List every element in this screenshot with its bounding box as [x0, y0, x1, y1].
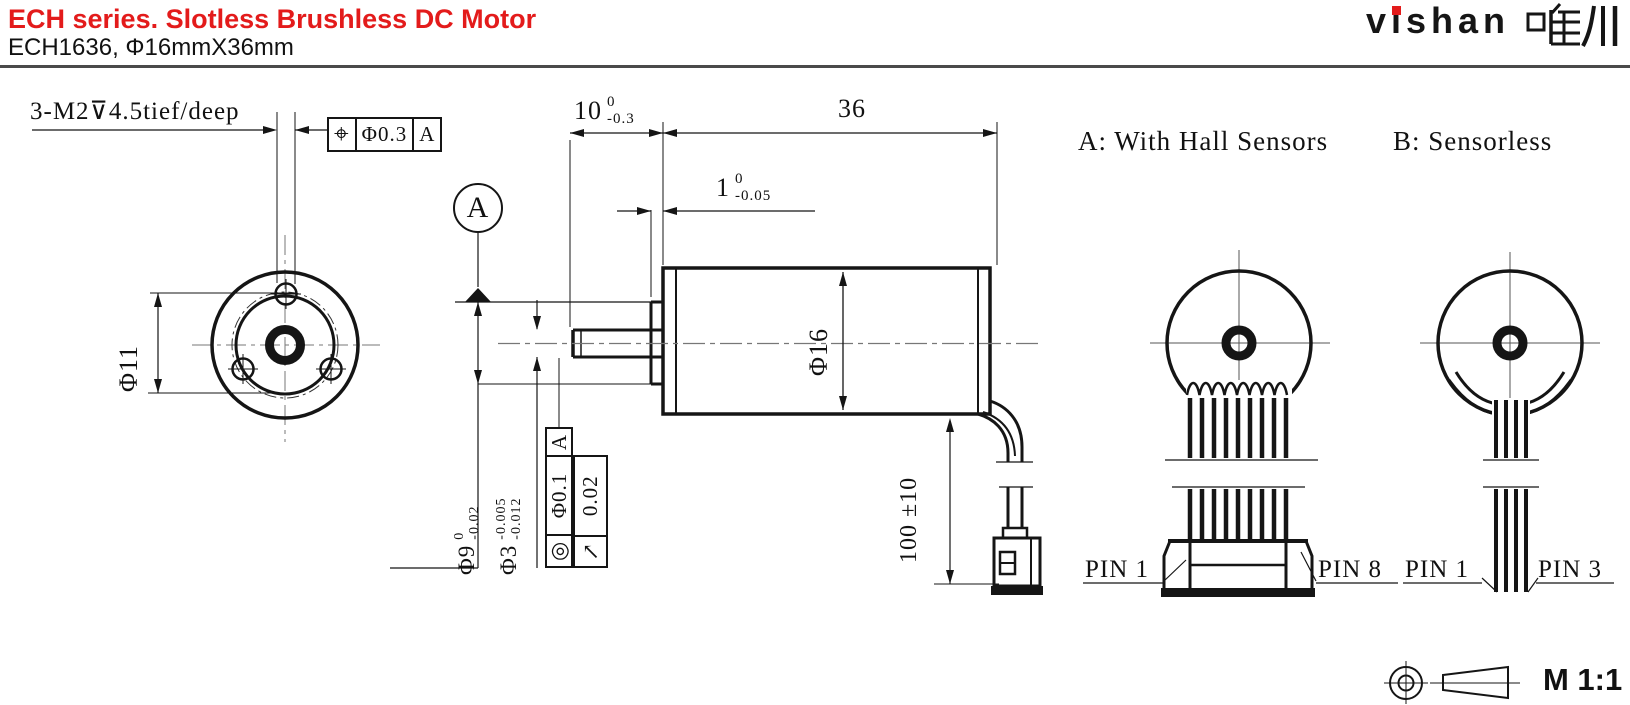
tap-callout-leaders: [32, 112, 327, 284]
pin1-label-a: PIN 1: [1085, 556, 1149, 584]
position-symbol-icon: ⌖: [329, 119, 355, 150]
variant-a-label: A: With Hall Sensors: [1078, 126, 1328, 157]
dim-lower-tol: -0.3: [607, 111, 635, 128]
brand-logo: vishan: [1366, 0, 1510, 42]
cable-length-dimension: [934, 421, 999, 584]
header-divider: [0, 65, 1630, 68]
concentricity-symbol-icon: ◎: [547, 536, 571, 566]
scale-label: M 1:1: [1543, 662, 1622, 698]
connector-side: [991, 528, 1043, 595]
logo-red-dot: [1392, 6, 1401, 15]
dim-value: Φ9: [454, 545, 480, 575]
pin8-leader-a: [1301, 552, 1316, 581]
tap-hole-note: 3-M2⊽4.5tief/deep: [30, 96, 240, 126]
pin3-leader-b: [1528, 578, 1538, 592]
bolt-circle-dimension-label: Φ11: [114, 287, 144, 392]
pin8-label-a: PIN 8: [1318, 556, 1382, 584]
drawing-sheet: ECH series. Slotless Brushless DC Motor …: [0, 0, 1630, 705]
first-angle-projection-icon: [1384, 661, 1520, 704]
dim-lower-tol: -0.012: [509, 498, 524, 540]
page-subtitle: ECH1636, Φ16mmX36mm: [8, 34, 294, 62]
concentricity-tolerance-value: Φ0.1: [547, 457, 571, 536]
boss-length-dimension: 1 0 -0.05: [716, 171, 771, 204]
position-tolerance-value: Φ0.3: [355, 119, 413, 150]
dim-lower-tol: -0.02: [467, 506, 482, 540]
dim-value: 10: [574, 96, 602, 126]
cable-length-label: 100 ±10: [896, 438, 923, 563]
body-length-dimension: 36: [838, 94, 866, 124]
connector-a: [1161, 541, 1315, 597]
concentricity-datum-ref: A: [547, 429, 571, 457]
front-view: [32, 112, 380, 442]
pin1-label-b: PIN 1: [1405, 556, 1469, 584]
datum-a-balloon-label: A: [456, 191, 500, 225]
dim-value: Φ3: [496, 545, 522, 575]
dim-upper-tol: 0: [735, 171, 771, 188]
cable-side: [978, 401, 1033, 528]
variant-b-label: B: Sensorless: [1393, 126, 1552, 157]
pin1-leader-a: [1164, 560, 1186, 581]
shaft-length-dimension: 10 0 -0.3: [574, 94, 635, 127]
variant-b-view: [1403, 252, 1614, 592]
boss-diameter-label: Φ9 0 -0.02: [452, 420, 483, 575]
runout-tolerance-value: 0.02: [575, 457, 606, 537]
runout-tolerance-frame: ↗ 0.02: [573, 455, 608, 568]
dim-upper-tol: -0.005: [494, 498, 509, 540]
runout-symbol-icon: ↗: [575, 537, 606, 566]
dim-upper-tol: 0: [452, 506, 467, 540]
position-tolerance-frame: ⌖ Φ0.3 A: [327, 117, 442, 152]
dim-lower-tol: -0.05: [735, 188, 771, 205]
page-title: ECH series. Slotless Brushless DC Motor: [8, 4, 536, 35]
position-datum-ref: A: [412, 119, 440, 150]
variant-a-view: [1083, 250, 1398, 597]
dim-upper-tol: 0: [607, 94, 635, 111]
body-diameter-label: Φ16: [804, 306, 834, 376]
pin3-label-b: PIN 3: [1538, 556, 1602, 584]
dim-value: 1: [716, 173, 730, 203]
concentricity-tolerance-frame: ◎ Φ0.1 A: [545, 427, 573, 568]
shaft-diameter-label: Φ3 -0.005 -0.012: [494, 410, 525, 575]
logo-cjk-icon: [1528, 4, 1615, 46]
